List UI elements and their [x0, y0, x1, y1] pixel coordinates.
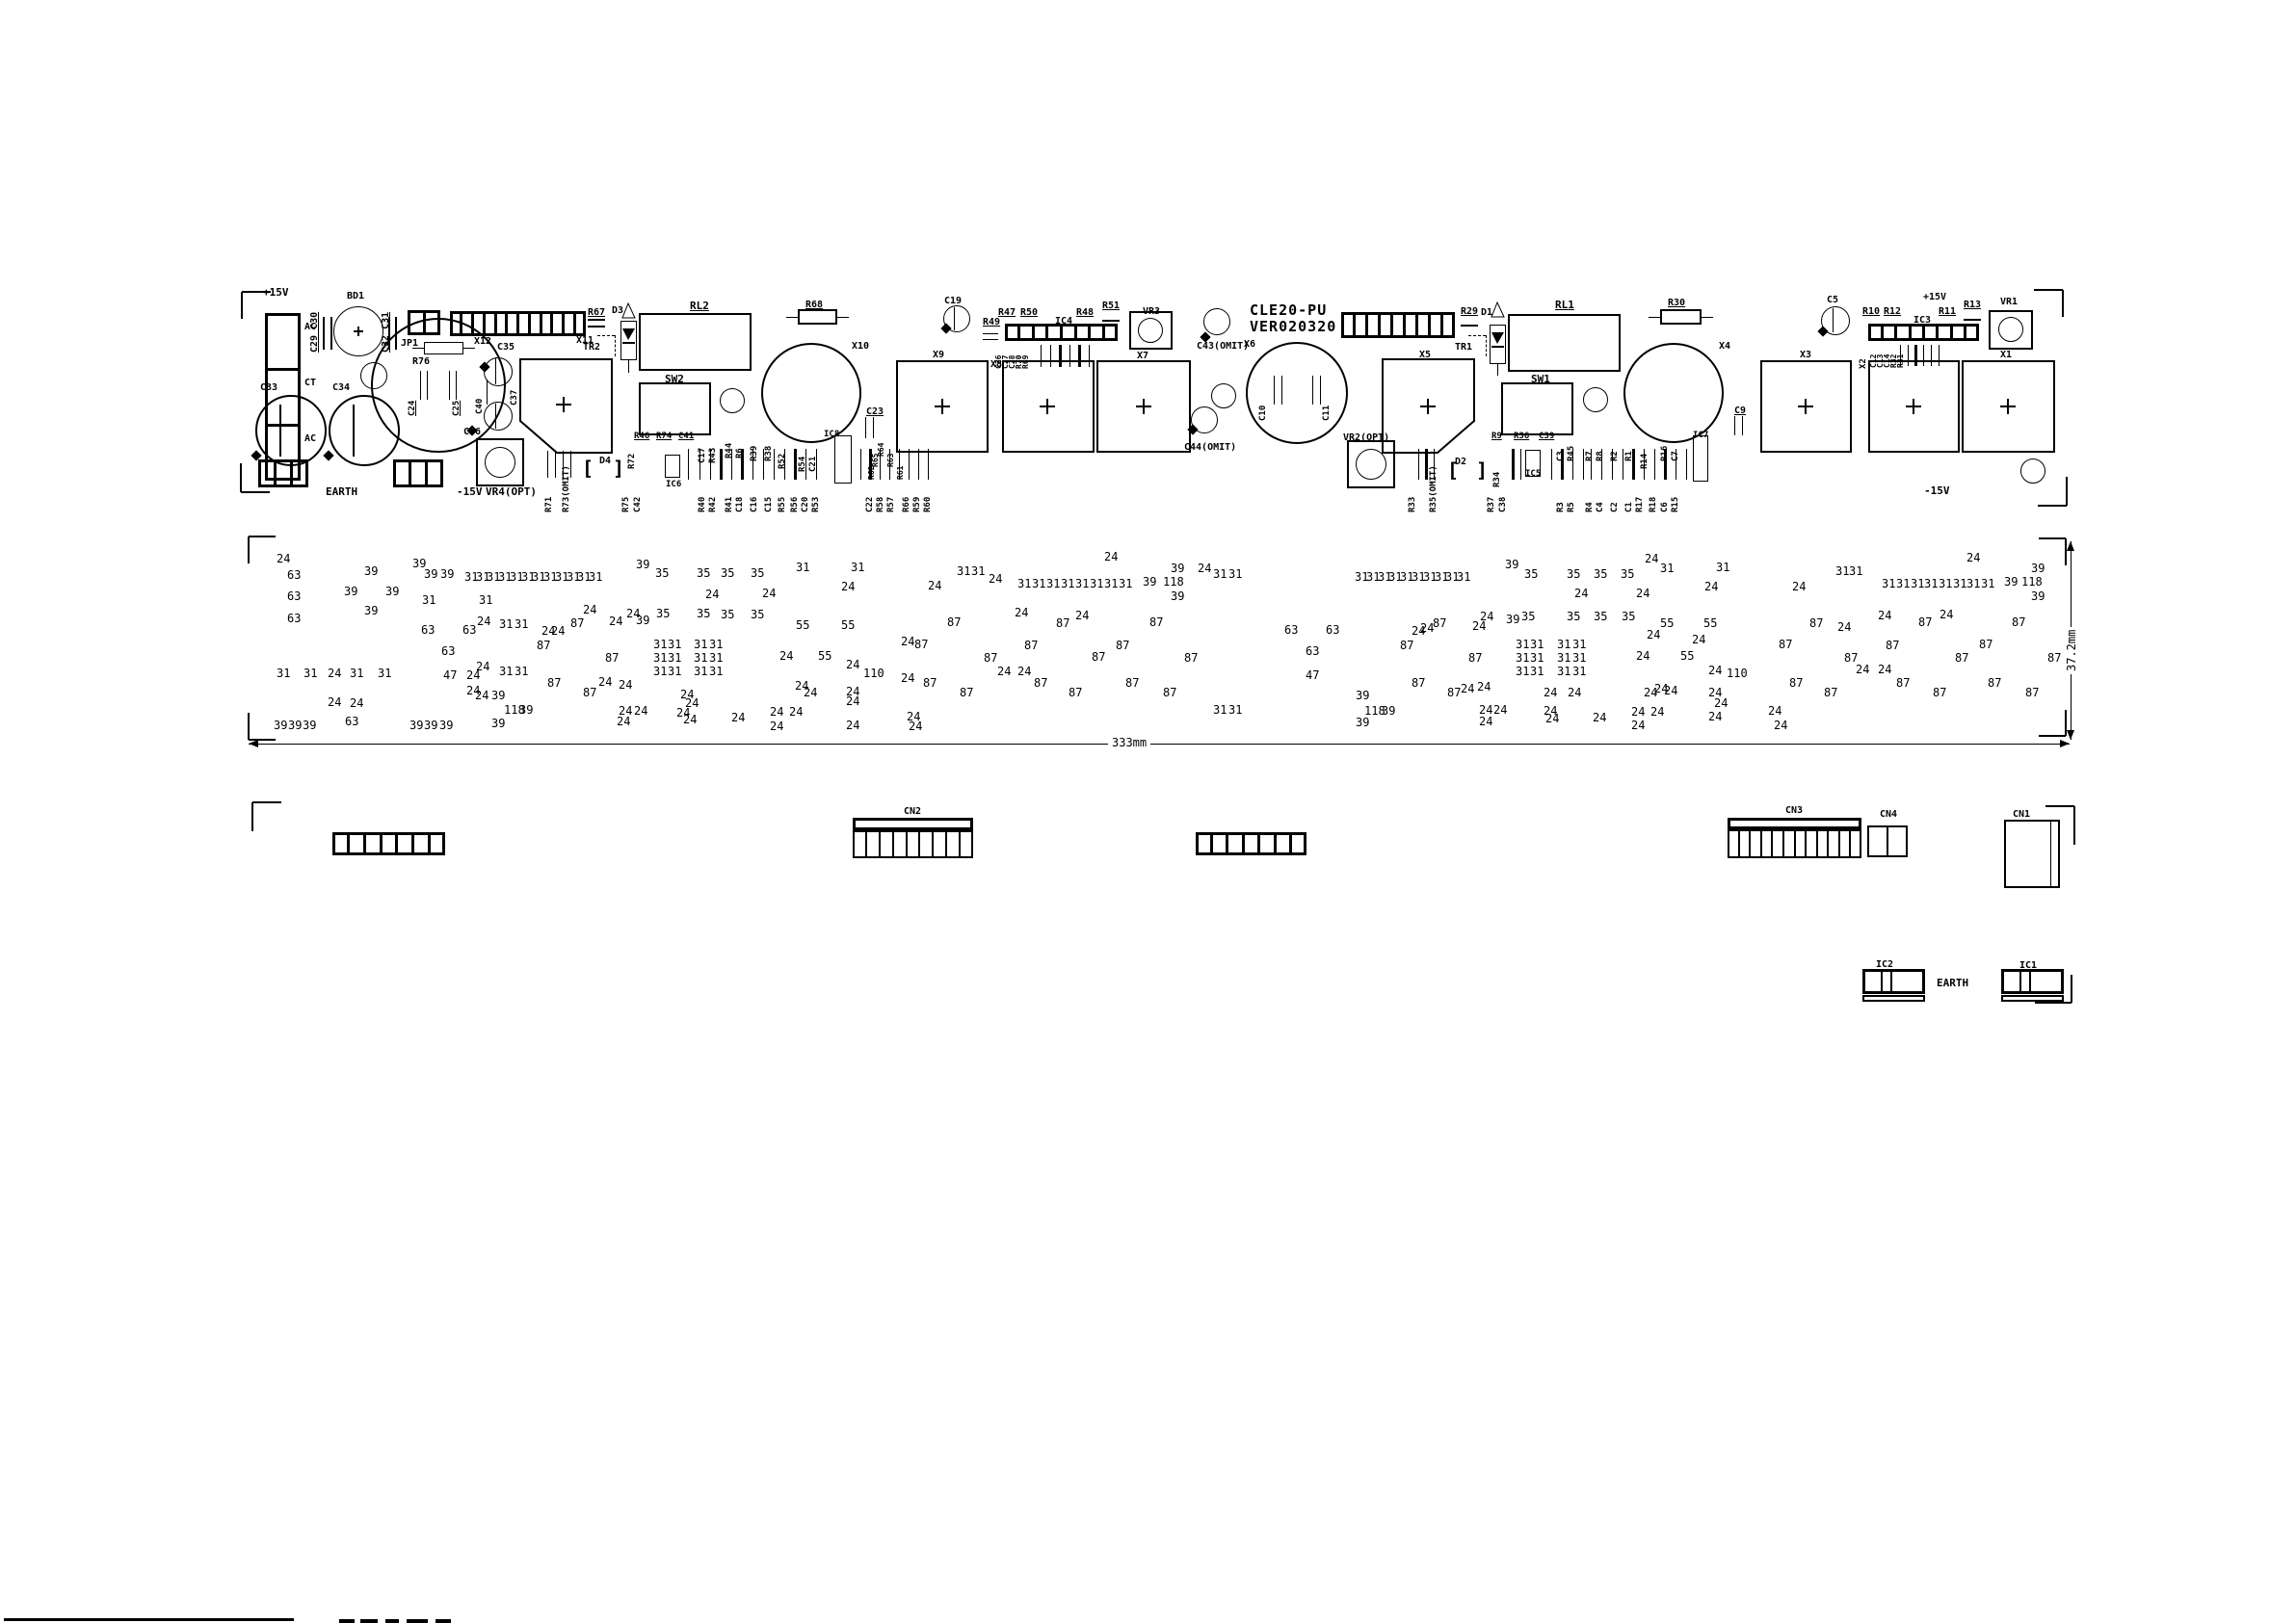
- filled-triangle: [2060, 740, 2070, 747]
- board-height-dimension: 37.2mm: [2066, 627, 2077, 674]
- polygon-outline: [1383, 359, 1474, 453]
- polygon-outline: [520, 359, 612, 453]
- polygon-outline: [622, 303, 635, 318]
- board-width-dimension: 333mm: [1108, 737, 1150, 748]
- filled-triangle: [249, 740, 258, 747]
- title-block-line1: CLE20-PU: [1250, 303, 1327, 318]
- pcb-assembly-drawing: CLE20-PU VER020320 333mm 37.2mm +15VACCT…: [0, 0, 2296, 1623]
- drawing-overlay: [0, 0, 2296, 1623]
- filled-triangle: [622, 328, 635, 340]
- filled-triangle: [1491, 332, 1504, 344]
- polygon-outline: [1491, 302, 1504, 317]
- filled-triangle: [2067, 541, 2074, 551]
- title-block-line2: VER020320: [1250, 320, 1336, 334]
- filled-triangle: [2067, 730, 2074, 740]
